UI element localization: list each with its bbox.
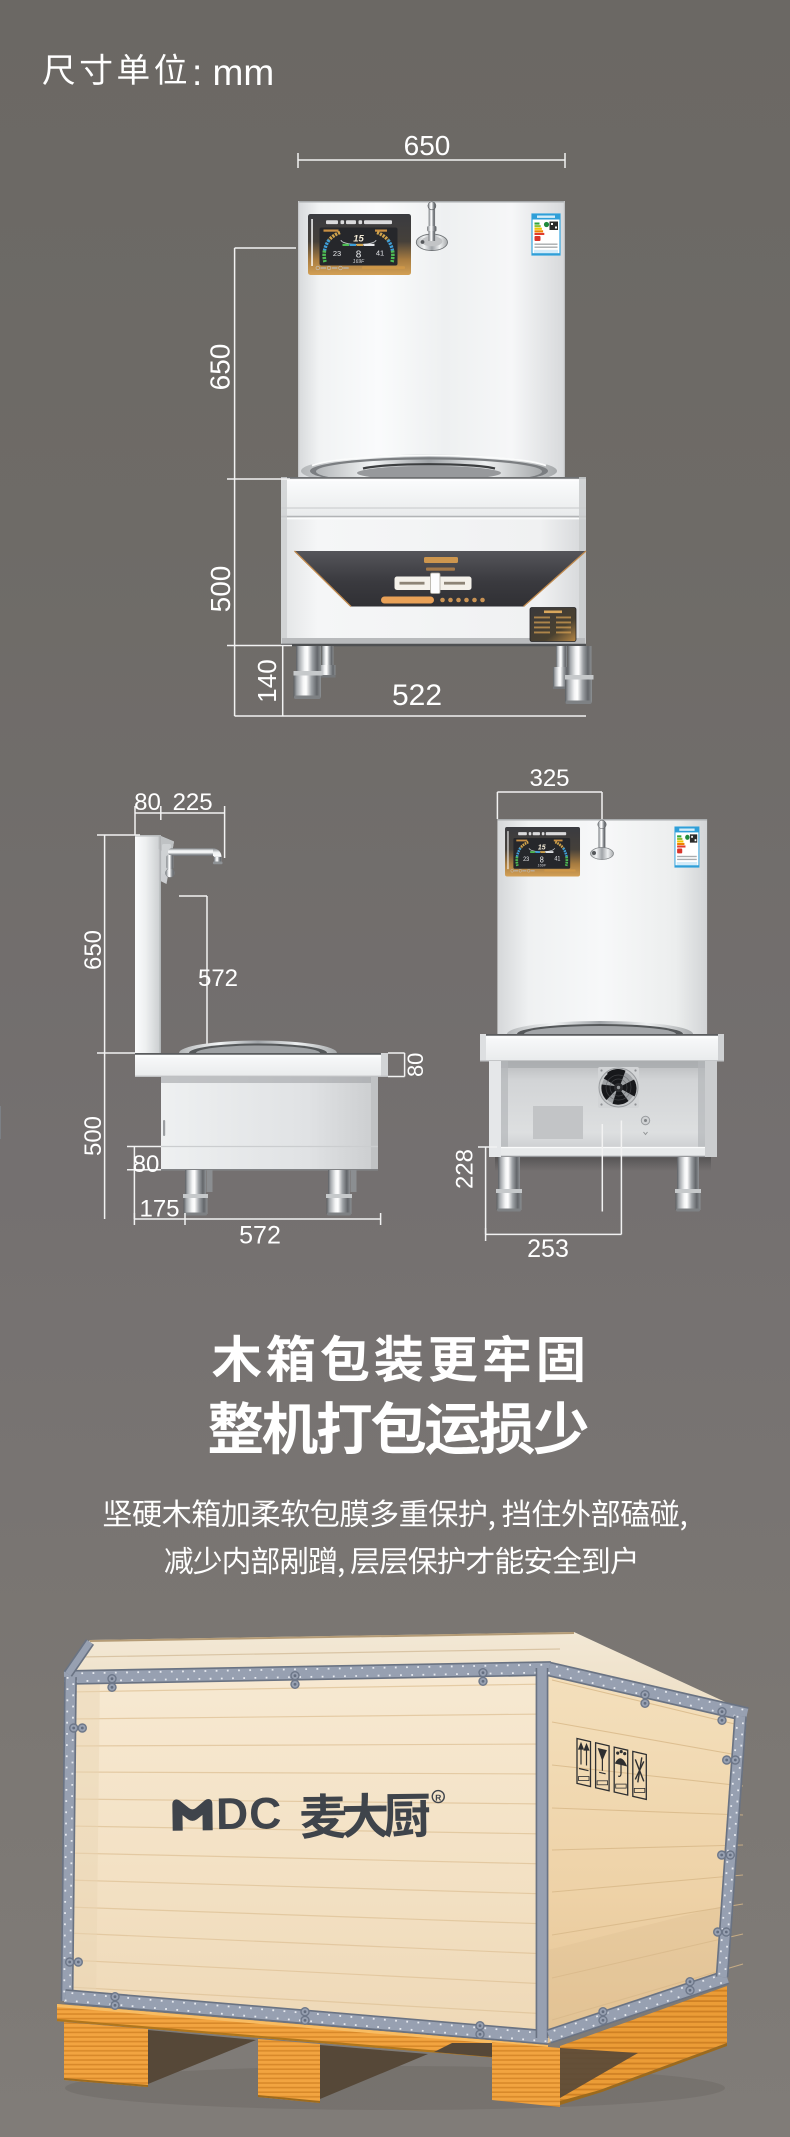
svg-text:175: 175 bbox=[139, 1196, 179, 1223]
svg-text:253: 253 bbox=[527, 1235, 569, 1263]
svg-text:169F: 169F bbox=[353, 259, 365, 265]
svg-text:325: 325 bbox=[529, 765, 569, 792]
svg-text:572: 572 bbox=[198, 965, 238, 992]
svg-text:500: 500 bbox=[205, 566, 236, 613]
svg-text:650: 650 bbox=[80, 930, 107, 970]
svg-text:500: 500 bbox=[80, 1116, 107, 1156]
svg-text:225: 225 bbox=[173, 789, 213, 816]
svg-text:41: 41 bbox=[376, 249, 384, 258]
svg-text:522: 522 bbox=[392, 679, 442, 712]
svg-text:R: R bbox=[435, 1793, 441, 1803]
svg-text:650: 650 bbox=[404, 130, 451, 161]
svg-text:650: 650 bbox=[205, 344, 236, 391]
svg-text:80: 80 bbox=[134, 789, 161, 816]
svg-text:23: 23 bbox=[333, 249, 341, 258]
svg-text:228: 228 bbox=[452, 1149, 479, 1189]
svg-text:: mm: : mm bbox=[192, 52, 274, 93]
svg-text:140: 140 bbox=[252, 659, 282, 702]
svg-text:80: 80 bbox=[403, 1053, 428, 1077]
svg-text:572: 572 bbox=[239, 1222, 281, 1250]
svg-text:80: 80 bbox=[133, 1151, 160, 1178]
svg-text:15: 15 bbox=[353, 234, 364, 245]
svg-text:DC: DC bbox=[216, 1789, 283, 1839]
